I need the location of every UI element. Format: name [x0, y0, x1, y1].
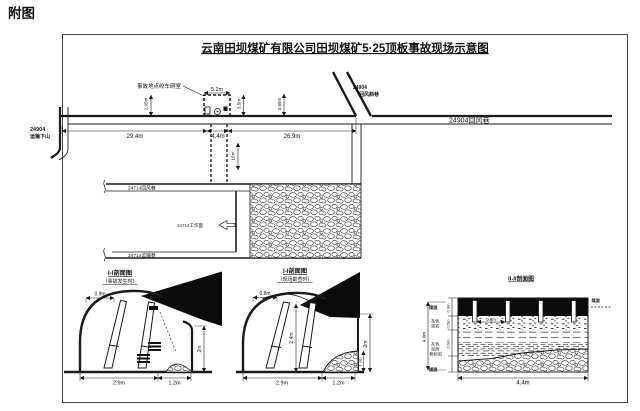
seam-top-label: 煤层	[429, 304, 438, 311]
s3-dim-post-gap: 0.8m	[486, 317, 496, 322]
seam-bottom-label: 煤层	[429, 366, 438, 373]
diagram-title: 云南田坝煤矿有限公司田坝煤矿5·25顶板事故现场示意图	[201, 41, 489, 55]
roof-post-front3	[539, 301, 544, 323]
s1-dim-bottom-right: 1.2m	[168, 381, 181, 387]
s1-dim-bottom-left: 2.9m	[113, 381, 126, 387]
roadway-dip-left-line	[51, 107, 60, 158]
roof-post-front4	[572, 301, 577, 323]
section1-title: I-I剖面图	[108, 269, 132, 277]
s3-dim-layer3: 0.9m	[446, 339, 451, 349]
incline-number: 24904	[353, 85, 367, 91]
section3-title: II-II剖面图	[508, 275, 534, 283]
section1-subtitle: （事故发生时）	[102, 278, 137, 285]
accident-location-label: 事故地点绞车硐室	[137, 82, 182, 90]
dim-chamber-width: 5.2m	[211, 87, 224, 93]
s2-dim-bottom-left: 2.9m	[276, 381, 289, 387]
rw24714-return-label: 24714回风巷	[128, 186, 156, 192]
face-24714-label: 24714工作面	[177, 222, 204, 229]
page-label: 附图	[8, 5, 35, 21]
dim-chamber-span: 4.4m	[211, 134, 224, 140]
s2-dim-mid-height: 2.4m	[289, 332, 295, 343]
s3-dim-width: 4.4m	[516, 381, 529, 387]
dim-v-down: 15m	[231, 151, 236, 160]
s3-dim-layer2: 0.5m	[446, 319, 451, 329]
return-airway-label: 24904回风巷	[449, 117, 489, 125]
rw24714-transport-label: 24714运输巷	[128, 252, 156, 259]
dim-v-right: 3.65m	[277, 97, 282, 110]
seam-right-label: 煤层	[592, 297, 601, 304]
s1-dim-top: 0.9m	[94, 292, 105, 298]
dim-left-span: 29.4m	[127, 134, 144, 140]
s2-dim-debris-height: 1.1m	[358, 357, 363, 367]
mid1-line2: 泥岩	[431, 323, 439, 330]
goaf-area	[251, 185, 361, 258]
s2-dim-bottom-right: 1.2m	[332, 381, 345, 387]
roof-post-front	[473, 301, 478, 323]
section2-subtitle: （现场勘查时）	[277, 276, 312, 283]
s1-dim-height: 2m	[197, 346, 203, 353]
dim-v-chamber: 3.5m	[237, 99, 242, 109]
incline-name: 回风斜巷	[359, 91, 380, 98]
s2-dim-top: 0.8m	[259, 291, 270, 297]
section2-title: I-I剖面图	[283, 267, 307, 275]
mudstone-layer	[458, 330, 588, 343]
dim-right-span: 26.9m	[284, 134, 301, 140]
dip-roadway-number: 24904	[30, 127, 46, 133]
dip-roadway-name: 运输下山	[30, 133, 50, 140]
coal-seam-band	[458, 298, 588, 316]
roof-post-front2	[506, 301, 511, 323]
dim-v-left: 2.05m	[144, 97, 149, 110]
accident-diagram: 附图 云南田坝煤矿有限公司田坝煤矿5·25顶板事故现场示意图 24904 运输下…	[0, 0, 640, 411]
s3-dim-layer1: 0.3m	[446, 303, 451, 313]
s3-dim-total: 4.0m	[422, 332, 427, 342]
s2-dim-height: 2m	[363, 341, 369, 348]
mid2-line3: 粉砂岩	[430, 351, 443, 358]
dotted-layer	[458, 316, 588, 330]
